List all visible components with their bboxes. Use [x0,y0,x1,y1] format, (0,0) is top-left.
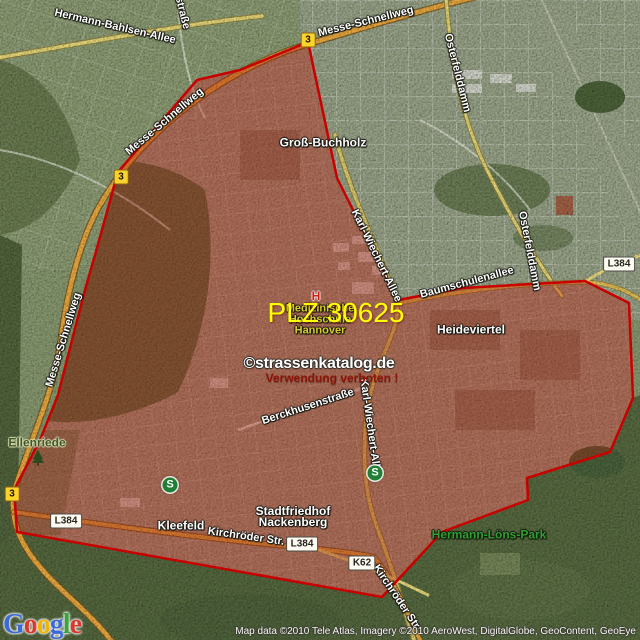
road-badge-l384: L384 [50,514,82,529]
street-label-messe-schnellweg: Messe-Schnellweg [124,86,206,157]
street-label-kirchr-der-str: Kirchröder Str. [207,526,285,548]
place-label-hermann-l-ns-park: Hermann-Löns-Park [432,530,547,541]
place-label-ellenriede: Ellenriede [8,438,65,449]
place-label-line: Ellenriede [8,438,65,449]
street-label-osterfelddamm: Osterfelddamm [442,33,472,114]
street-label-messe-schnellweg: Messe-Schnellweg [317,5,415,39]
bundesstrasse-badge-3: 3 [114,170,129,185]
place-label-stadtfriedhof-nackenberg: StadtfriedhofNackenberg [256,506,331,528]
place-label-line: Heideviertel [437,325,505,336]
bundesstrasse-badge-3: 3 [301,33,316,48]
place-label-line: Groß-Buchholz [280,138,367,149]
sbahn-station-icon: S [368,466,383,481]
place-label-gro-buchholz: Groß-Buchholz [280,138,367,149]
place-label-line: Kleefeld [158,521,205,532]
road-badge-l384: L384 [286,537,318,552]
street-label-messe-schnellweg: Messe-Schnellweg [44,292,83,389]
place-label-line: Nackenberg [256,517,331,528]
street-label-karl-wiechert-allee: Karl-Wiechert-Allee [349,208,403,304]
street-label-osterfelddamm: Osterfelddamm [516,210,542,291]
road-badge-k62: K62 [348,556,375,571]
google-logo[interactable]: Google [3,611,81,639]
google-logo-letter: o [37,609,50,640]
google-logo-letter: G [3,609,24,640]
place-label-line: Hermann-Löns-Park [432,530,547,541]
watermark-notice: Verwendung verboten ! [266,371,399,385]
sbahn-station-icon: S [163,478,178,493]
street-label-kirchr-der-str: Kirchröder Str [371,563,422,631]
map-viewport[interactable]: Hermann-Bahlsen-AlleestraßeMesse-Schnell… [0,0,640,640]
place-label-kleefeld: Kleefeld [158,521,205,532]
street-label-berckhusenstra-e: Berckhusenstraße [261,387,356,427]
road-badge-l384: L384 [603,257,635,272]
google-logo-letter: e [70,609,81,640]
map-attribution: Map data ©2010 Tele Atlas, Imagery ©2010… [235,626,636,637]
street-label-baumschulenallee: Baumschulenallee [419,265,515,301]
plz-area-label: PLZ 30625 [268,297,405,329]
tree-icon [31,450,45,466]
google-logo-letter: g [50,609,63,640]
google-logo-letter: l [63,609,70,640]
google-logo-letter: o [24,609,37,640]
bundesstrasse-badge-3: 3 [5,487,20,502]
street-label-stra-e: straße [173,0,192,30]
street-label-karl-wiechert-allee: Karl-Wiechert-Allee [357,378,382,480]
street-label-hermann-bahlsen-allee: Hermann-Bahlsen-Allee [53,8,176,47]
place-label-heideviertel: Heideviertel [437,325,505,336]
